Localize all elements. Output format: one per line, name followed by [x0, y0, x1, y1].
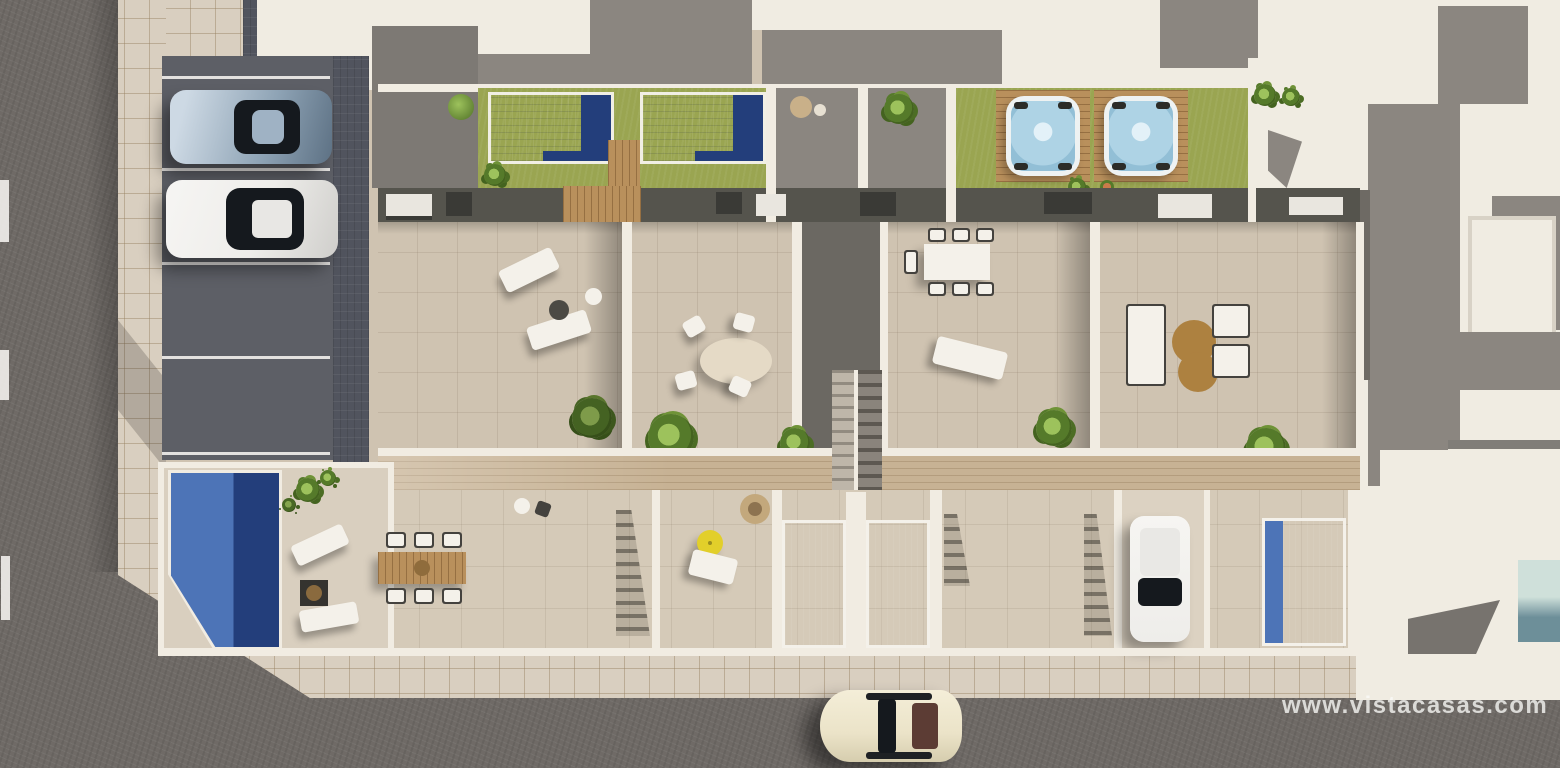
cushion: [748, 502, 762, 516]
paver-walkway: [333, 56, 369, 492]
neighbour-roof: [752, 0, 1010, 30]
neighbour-roof: [377, 0, 478, 28]
dining-chair: [386, 532, 406, 548]
terrace-wall: [792, 222, 802, 452]
neighbour-roof: [1460, 104, 1560, 200]
kitchen-sink: [716, 192, 742, 214]
road-shade: [86, 0, 118, 572]
headrest: [1058, 163, 1072, 170]
parasol-pole: [708, 541, 712, 545]
dining-chair: [952, 282, 970, 296]
car-windshield: [1138, 578, 1182, 606]
rooftop-pool-1: [488, 92, 614, 164]
plunge-pool: [866, 520, 930, 648]
dining-chair: [976, 228, 994, 242]
neighbour-roof-gray: [590, 0, 752, 90]
bistro-table: [514, 498, 530, 514]
neighbour-roof-gray: [478, 54, 590, 88]
outdoor-sofa: [1126, 304, 1166, 386]
garden-wall: [766, 86, 776, 188]
hot-tub: [1006, 96, 1080, 176]
headrest: [1156, 163, 1170, 170]
dining-chair: [442, 588, 462, 604]
kitchen-counter: [386, 194, 432, 220]
parking-line: [162, 168, 330, 171]
lane-marking: [0, 350, 9, 400]
corner-roof: [1248, 58, 1360, 190]
deck-plant: [296, 478, 320, 502]
wood-steps: [608, 140, 640, 188]
deck-plant: [320, 470, 336, 486]
terrace-wall: [1356, 222, 1364, 452]
corner-tiles: [166, 0, 243, 58]
wood-walkway-steps: [563, 186, 641, 224]
car-roof: [252, 200, 292, 238]
palm-plant: [1036, 410, 1072, 446]
parking-line: [162, 452, 330, 455]
pool-deep-edge: [543, 151, 583, 161]
car-roof: [252, 110, 284, 144]
palm-plant: [1254, 84, 1276, 106]
rooftop-pool-2: [640, 92, 766, 164]
wicker-chair: [740, 494, 770, 524]
armchair: [1212, 304, 1250, 338]
headrest: [1014, 102, 1028, 109]
side-table: [814, 104, 826, 116]
driveway-car-white: [1130, 516, 1190, 642]
patio-wall: [772, 490, 782, 650]
driveway-wall: [1114, 490, 1122, 650]
garden-wall: [858, 86, 868, 188]
private-pool: [1262, 518, 1346, 646]
lane-marking: [0, 180, 9, 242]
armchair: [1212, 344, 1250, 378]
watermark-text: www.vistacasas.com: [1282, 692, 1540, 720]
terrace-wall: [622, 222, 632, 452]
patio-wall: [930, 490, 942, 650]
plunge-pool: [782, 520, 846, 648]
neighbour-roof-gray: [1160, 0, 1258, 68]
lane-marking: [1, 556, 10, 620]
palm-plant: [572, 398, 612, 438]
pool-deep-zone: [733, 95, 763, 161]
dining-chair: [976, 282, 994, 296]
driveway-wall: [1204, 490, 1210, 650]
neighbour-pool: [1518, 560, 1560, 642]
kitchen-counter: [756, 194, 786, 216]
bbq-unit: [860, 192, 904, 216]
neighbour-roof-gray: [1460, 332, 1560, 390]
car-roof: [1140, 528, 1180, 576]
parking-line: [162, 356, 330, 359]
parked-car-silver: [170, 90, 332, 164]
car-rear-window: [912, 703, 938, 749]
hot-tub: [1104, 96, 1178, 176]
neighbour-roof: [478, 0, 590, 54]
car-windshield: [878, 699, 896, 753]
hot-tub-water: [1109, 101, 1173, 171]
kitchen-counter: [1158, 194, 1212, 218]
wicker-chair: [790, 96, 812, 118]
palm-plant: [1282, 88, 1300, 106]
kitchen-wall: [946, 188, 956, 222]
hot-tub-water: [1011, 101, 1075, 171]
headrest: [1112, 102, 1126, 109]
headrest: [1112, 163, 1126, 170]
bbq-unit: [1044, 192, 1092, 214]
kitchen-counter: [1286, 194, 1346, 218]
dining-chair: [928, 282, 946, 296]
dining-chair: [414, 588, 434, 604]
plot-bottom-wall: [158, 648, 1360, 656]
pool-deep-edge: [695, 151, 735, 161]
round-tree: [448, 94, 474, 120]
side-table-dark: [549, 300, 569, 320]
neighbour-roof-gray: [762, 30, 1002, 90]
side-table-white: [585, 288, 602, 305]
neighbour-courtyard: [1468, 216, 1556, 344]
utility-patio: [776, 88, 858, 188]
fire-bowl: [306, 585, 322, 601]
dining-chair: [928, 228, 946, 242]
street-car-classic: [820, 690, 962, 762]
neighbour-roof: [1002, 0, 1160, 90]
plot-wall: [1348, 490, 1360, 656]
dining-table-rect: [924, 244, 990, 280]
dining-chair: [904, 250, 918, 274]
dining-chair: [414, 532, 434, 548]
terrace-shadow: [1322, 222, 1356, 452]
car-side-rail: [866, 752, 932, 759]
pool-deep-zone: [581, 95, 611, 161]
dining-chair: [442, 532, 462, 548]
parking-line: [162, 76, 330, 79]
parking-line: [162, 262, 330, 265]
garden-wall: [946, 86, 956, 188]
parked-car-white: [166, 180, 338, 258]
fire-table: [300, 580, 328, 606]
kitchen-wall: [1248, 188, 1256, 222]
pool-divider-wall: [846, 492, 866, 648]
headrest: [1058, 102, 1072, 109]
patio-wall: [652, 490, 660, 650]
dining-chair: [952, 228, 970, 242]
neighbour-roof-gray: [1368, 104, 1460, 486]
terrace-wall: [1090, 222, 1100, 452]
wood-dining-table: [378, 552, 466, 584]
headrest: [1014, 163, 1028, 170]
kitchen-sink: [446, 192, 472, 216]
car-side-rail: [866, 693, 932, 700]
pool-shallow-strip: [1265, 521, 1283, 643]
garden-bush: [484, 164, 506, 186]
table-centerpiece: [414, 560, 430, 576]
aerial-development-render: www.vistacasas.com: [0, 0, 1560, 768]
deck-plant: [282, 498, 296, 512]
neighbour-roof-gray: [1438, 6, 1528, 106]
dining-chair: [386, 588, 406, 604]
headrest: [1156, 102, 1170, 109]
palm-plant: [884, 94, 914, 124]
